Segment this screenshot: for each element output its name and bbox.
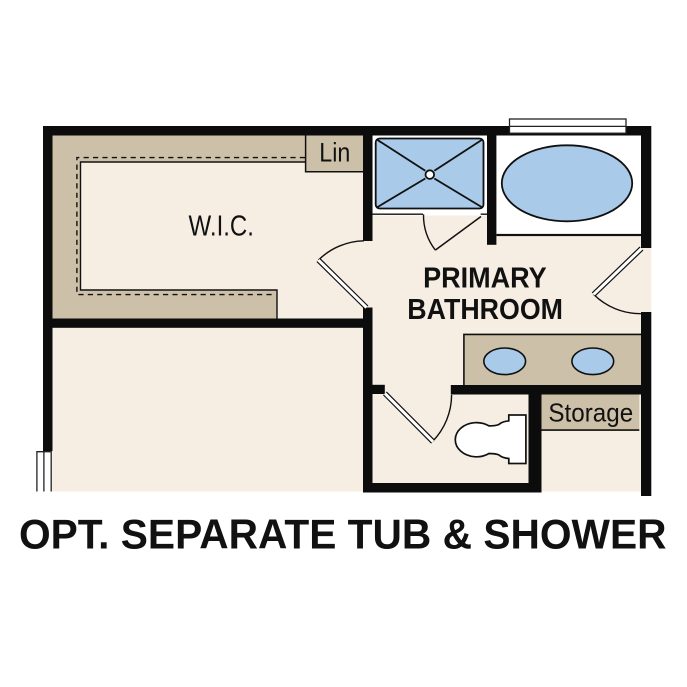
svg-text:PRIMARY: PRIMARY (423, 263, 547, 295)
svg-text:Lin: Lin (319, 138, 350, 168)
svg-text:OPT. SEPARATE TUB & SHOWER: OPT. SEPARATE TUB & SHOWER (19, 511, 667, 558)
svg-text:W.I.C.: W.I.C. (189, 211, 255, 243)
svg-text:BATHROOM: BATHROOM (407, 294, 563, 326)
svg-text:Storage: Storage (548, 400, 633, 428)
